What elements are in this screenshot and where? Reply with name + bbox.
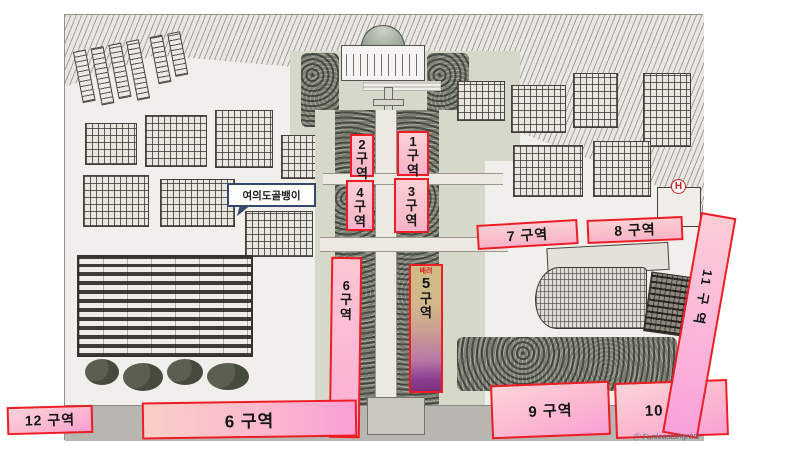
- city-building: [513, 145, 583, 197]
- assembly-columns: [346, 54, 420, 76]
- city-building: [593, 141, 651, 197]
- zone-11-label: 11 구 역: [690, 268, 719, 327]
- zone-1-yeok: 역: [407, 164, 419, 178]
- footbridge: [367, 397, 425, 435]
- zone-8-label: 8 구역: [614, 219, 656, 241]
- zone-4-gu: 구: [354, 200, 366, 214]
- zone-6-gu: 구: [340, 293, 352, 307]
- yeouido-illustrated-map: H 2 구 역 1 구 역 4 구 역 3 구 역 배려 5 구 역 6 구 역: [0, 0, 800, 450]
- zone-5-priority-overlay: 배려 5 구 역: [409, 264, 443, 393]
- zone-12-label: 12 구역: [25, 409, 76, 430]
- city-building: [145, 115, 207, 167]
- zone-8-overlay: 8 구역: [587, 216, 684, 244]
- zone-1-overlay: 1 구 역: [397, 131, 429, 176]
- zone-5-number: 5: [422, 276, 430, 293]
- zone-5-yeok: 역: [420, 306, 432, 320]
- zone-4-yeok: 역: [354, 215, 366, 229]
- city-building: [85, 123, 137, 165]
- national-assembly-building: [341, 45, 425, 81]
- zone-5-gu: 구: [420, 292, 432, 306]
- zone-3-number: 3: [408, 185, 415, 199]
- shrubs: [85, 359, 119, 385]
- zone-6-label: 6 구역: [225, 407, 275, 433]
- city-building: [643, 73, 691, 147]
- shrubs: [207, 363, 249, 390]
- zone-2-number: 2: [358, 138, 365, 152]
- city-building: [160, 179, 235, 227]
- zone-6-number: 6: [343, 279, 350, 293]
- zone-3-gu: 구: [406, 199, 418, 213]
- zone-3-overlay: 3 구 역: [394, 178, 429, 233]
- zone-12-overlay: 12 구역: [7, 405, 94, 435]
- large-office-building: [77, 255, 253, 357]
- zone-6-yeok: 역: [340, 308, 352, 322]
- fountain-monument-arm: [373, 99, 404, 106]
- shrubs: [123, 363, 163, 391]
- zone-9-overlay: 9 구역: [490, 381, 611, 440]
- zone-4-overlay: 4 구 역: [346, 180, 374, 231]
- curved-building: [535, 267, 647, 329]
- city-building: [457, 81, 505, 121]
- zone-2-overlay: 2 구 역: [350, 134, 374, 177]
- zone-7-label: 7 구역: [506, 223, 549, 245]
- zone-2-yeok: 역: [356, 167, 368, 181]
- zone-1-number: 1: [409, 135, 416, 149]
- apartment-tower: [167, 31, 188, 77]
- callout-text: 여의도골뱅이: [243, 188, 301, 203]
- zone-3-yeok: 역: [406, 214, 418, 228]
- zone-6-horizontal-overlay: 6 구역: [142, 400, 357, 440]
- artist-signature: Ⓟ Funleastangram: [632, 430, 700, 442]
- city-building: [83, 175, 149, 227]
- assembly-steps: [363, 81, 441, 91]
- city-building: [511, 85, 566, 133]
- city-building: [573, 73, 618, 128]
- zone-1-gu: 구: [407, 149, 419, 163]
- yeouido-golbaengi-callout: 여의도골뱅이: [227, 183, 316, 207]
- city-building: [215, 110, 273, 168]
- park-central-path: [375, 110, 397, 405]
- shrubs: [167, 359, 203, 385]
- zone-9-label: 9 구역: [528, 399, 573, 422]
- zone-4-number: 4: [356, 186, 363, 200]
- zone-2-gu: 구: [356, 152, 368, 166]
- h-helipad-icon: H: [671, 179, 686, 194]
- city-building: [245, 211, 313, 257]
